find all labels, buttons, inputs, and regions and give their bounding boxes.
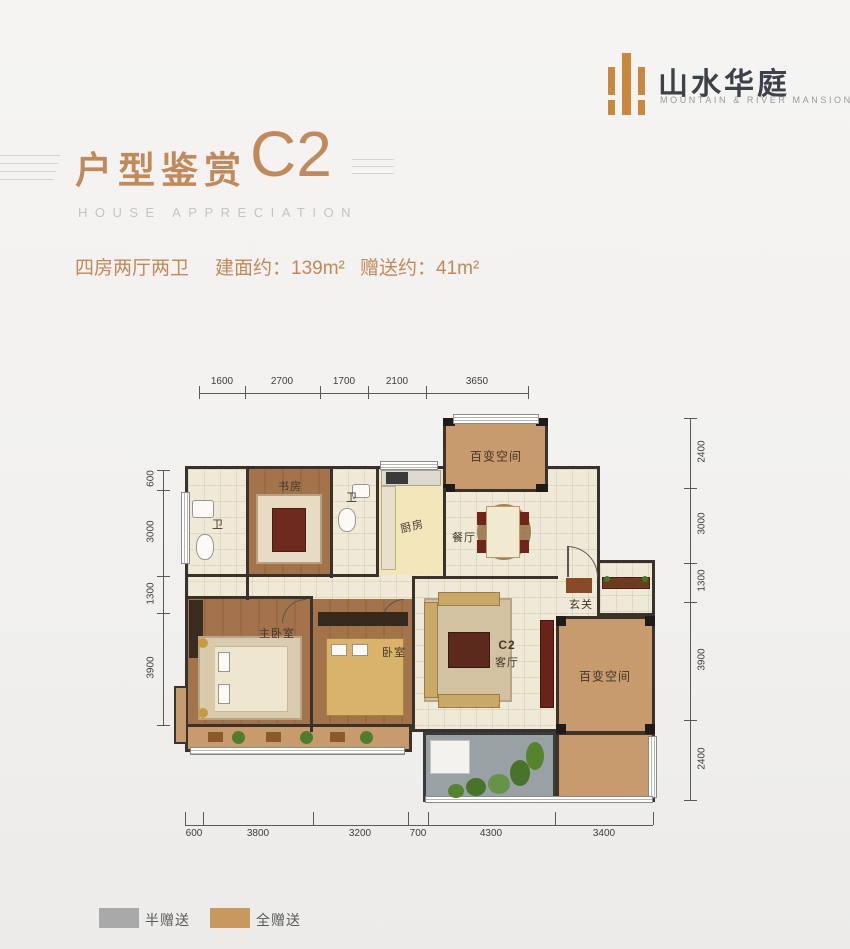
dim-tick — [684, 720, 697, 721]
garden-plant — [466, 778, 486, 796]
garden-plant — [526, 742, 544, 770]
partition-wall — [412, 576, 415, 732]
legend-swatch-half — [99, 908, 139, 928]
plant — [360, 731, 373, 744]
partition-wall — [185, 596, 313, 599]
floor-plan: 卫 书房 卫 厨房 百变空间 餐厅 玄关 主卧室 卧室 C2 客厅 百变空间 1… — [0, 0, 850, 949]
dim-tick — [555, 812, 556, 825]
window — [380, 461, 438, 470]
dim-value: 3900 — [697, 638, 708, 682]
coffee-table — [448, 632, 490, 668]
dining-chair — [477, 540, 486, 553]
legend-label-full: 全赠送 — [256, 910, 301, 930]
dim-tick — [203, 812, 204, 825]
partition-wall — [310, 596, 313, 732]
dining-chair — [520, 540, 529, 553]
wardrobe — [318, 612, 408, 626]
room-label-bedroom: 卧室 — [382, 644, 406, 660]
plant — [300, 731, 313, 744]
dim-tick — [684, 563, 697, 564]
partition-wall — [185, 574, 379, 577]
dim-tick — [684, 418, 697, 419]
dim-value: 3650 — [447, 376, 507, 387]
sofa-seat — [438, 694, 500, 708]
dim-value: 3900 — [146, 646, 157, 690]
room-label-foyer: 玄关 — [569, 596, 593, 612]
dim-tick — [653, 812, 654, 825]
garden-plant — [488, 774, 510, 794]
room-label-dining: 餐厅 — [452, 529, 476, 545]
dining-chair — [520, 512, 529, 525]
dining-table — [486, 506, 520, 558]
wall-post — [556, 724, 566, 734]
console-plant — [642, 576, 648, 582]
dim-value: 3400 — [574, 828, 634, 839]
entrance-door-leaf — [567, 546, 569, 577]
room-label-bath1: 卫 — [212, 516, 224, 532]
dim-line-top — [199, 393, 528, 394]
room-label-study: 书房 — [278, 478, 302, 494]
window — [181, 492, 190, 564]
dim-line-bottom — [185, 825, 653, 826]
toilet — [338, 508, 356, 532]
lamp — [198, 638, 208, 648]
dim-tick — [426, 386, 427, 399]
room-label-living: 客厅 — [495, 654, 519, 670]
room-label-living-code: C2 — [498, 638, 515, 652]
dim-value: 1300 — [697, 559, 708, 603]
door-mat — [566, 578, 592, 593]
dim-tick — [245, 386, 246, 399]
dim-tick — [684, 488, 697, 489]
dim-tick — [157, 725, 170, 726]
window — [648, 736, 657, 798]
pillow — [218, 684, 230, 704]
study-desk — [272, 508, 306, 552]
bottom-full-gift — [556, 732, 655, 802]
dim-value: 2400 — [697, 737, 708, 781]
garden-plant — [448, 784, 464, 798]
pillow — [331, 644, 347, 656]
dim-tick — [157, 470, 170, 471]
pillow — [218, 652, 230, 672]
dim-value: 600 — [146, 457, 157, 501]
dim-value: 700 — [398, 828, 438, 839]
dim-value: 1300 — [146, 572, 157, 616]
cushion — [330, 732, 345, 742]
bed-headboard — [206, 646, 215, 712]
dim-line-left — [163, 470, 164, 725]
dim-tick — [684, 800, 697, 801]
flyer-page: 山水华庭 MOUNTAIN & RIVER MANSION 户型鉴赏 C2 HO… — [0, 0, 850, 949]
dim-value: 3000 — [146, 510, 157, 554]
partition-wall — [597, 488, 600, 546]
lamp — [198, 708, 208, 718]
plant — [232, 731, 245, 744]
dim-value: 600 — [174, 828, 214, 839]
dining-chair — [477, 512, 486, 525]
dim-value: 2100 — [367, 376, 427, 387]
partition-wall — [246, 466, 249, 600]
wall-post — [645, 724, 655, 734]
dim-tick — [528, 386, 529, 399]
partition-wall — [412, 576, 558, 579]
dim-tick — [199, 386, 200, 399]
dim-tick — [185, 812, 186, 825]
partition-wall — [376, 466, 379, 576]
dim-value: 3000 — [697, 502, 708, 546]
room-label-bath2: 卫 — [346, 489, 358, 505]
cushion — [266, 732, 281, 742]
room-label-master: 主卧室 — [259, 625, 295, 641]
dim-value: 3800 — [228, 828, 288, 839]
stove — [386, 472, 408, 484]
legend-swatch-full — [210, 908, 250, 928]
dim-tick — [684, 602, 697, 603]
window — [453, 414, 539, 424]
dim-tick — [157, 613, 170, 614]
room-label-flex-right: 百变空间 — [579, 668, 631, 685]
dim-tick — [320, 386, 321, 399]
partition-wall — [330, 466, 333, 578]
pillow — [352, 644, 368, 656]
legend-label-half: 半赠送 — [145, 910, 190, 930]
sofa-seat — [438, 592, 500, 606]
toilet — [196, 534, 214, 560]
wall-post — [556, 616, 566, 626]
dim-value: 3200 — [330, 828, 390, 839]
dim-tick — [313, 812, 314, 825]
dim-tick — [428, 812, 429, 825]
kitchen-counter-side — [381, 486, 396, 570]
dim-line-right — [690, 418, 691, 800]
dim-value: 2400 — [697, 430, 708, 474]
partition-wall — [443, 488, 446, 576]
sink — [192, 500, 214, 518]
window — [190, 747, 405, 755]
cushion — [208, 732, 223, 742]
wall-post — [536, 484, 548, 492]
sofa-back — [424, 602, 438, 698]
dim-value: 2700 — [252, 376, 312, 387]
dim-value: 4300 — [461, 828, 521, 839]
room-label-flex-top: 百变空间 — [470, 448, 522, 465]
dim-tick — [157, 490, 170, 491]
dim-tick — [157, 576, 170, 577]
dim-value: 1700 — [314, 376, 374, 387]
dim-tick — [368, 386, 369, 399]
side-box — [174, 686, 188, 744]
tv-console — [540, 620, 554, 708]
wall-post — [645, 616, 655, 626]
console-plant — [604, 576, 610, 582]
dim-tick — [408, 812, 409, 825]
garden-mat — [430, 740, 470, 774]
dim-value: 1600 — [192, 376, 252, 387]
